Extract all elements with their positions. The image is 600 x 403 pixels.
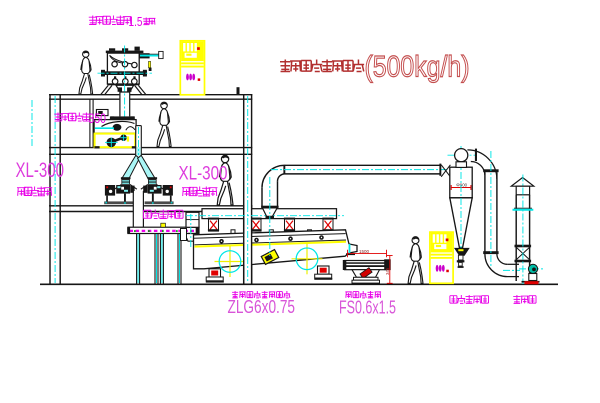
svg-text:1500: 1500 (359, 249, 370, 254)
svg-text:XL-300: XL-300 (16, 159, 65, 182)
svg-text:350: 350 (89, 111, 107, 126)
svg-text:(500kg/h): (500kg/h) (365, 51, 470, 84)
svg-text:345: 345 (385, 267, 390, 275)
svg-text:1.5: 1.5 (129, 14, 143, 29)
svg-text:FS0.6x1.5: FS0.6x1.5 (339, 297, 396, 317)
svg-text:ZLG6x0.75: ZLG6x0.75 (228, 297, 296, 317)
svg-text:Φ900: Φ900 (456, 183, 467, 188)
svg-text:XL-300: XL-300 (179, 164, 228, 185)
